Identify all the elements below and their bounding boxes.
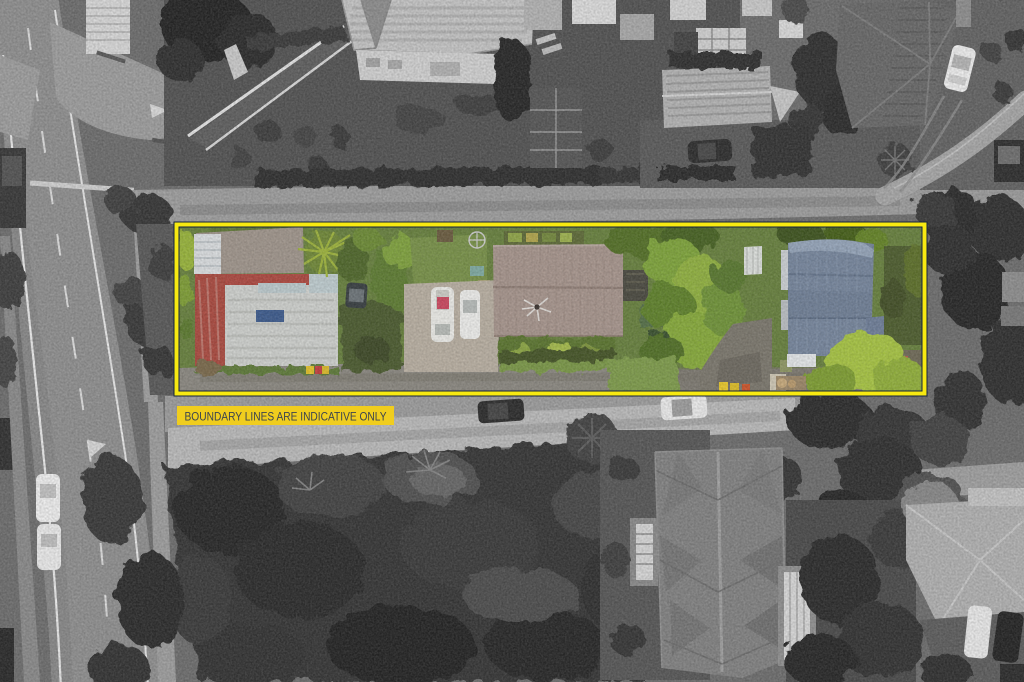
svg-text:BOUNDARY LINES ARE INDICATIVE: BOUNDARY LINES ARE INDICATIVE ONLY — [185, 410, 387, 424]
